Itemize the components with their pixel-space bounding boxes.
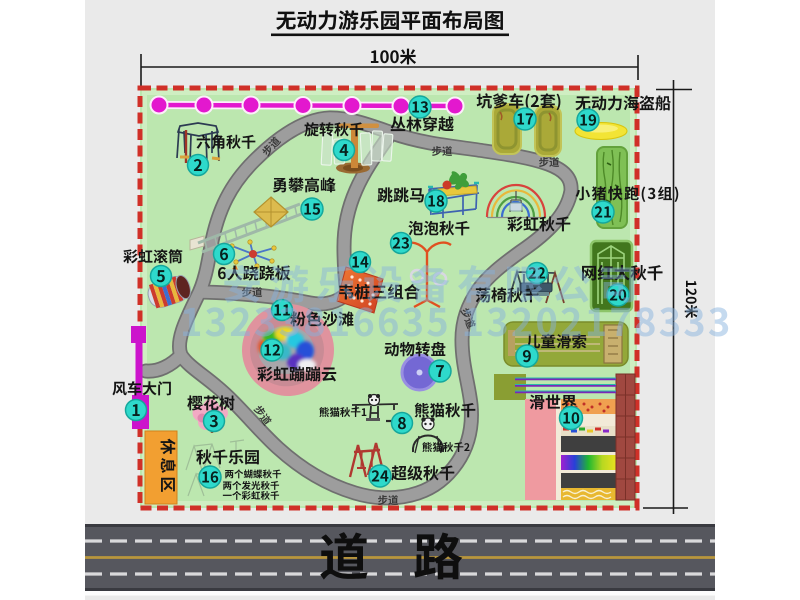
svg-text:5: 5 [156,263,165,287]
svg-text:跳跳马: 跳跳马 [377,182,425,206]
svg-text:100米: 100米 [369,43,416,68]
svg-text:4: 4 [339,137,348,161]
svg-text:熊猫秋千2: 熊猫秋千2 [422,440,470,455]
svg-text:勇攀高峰: 勇攀高峰 [272,172,336,196]
svg-text:19: 19 [579,110,597,131]
svg-text:15: 15 [303,199,321,220]
svg-text:17: 17 [516,109,534,130]
svg-text:六角秋千: 六角秋千 [196,132,256,153]
svg-text:3: 3 [209,408,218,432]
svg-text:熊猫秋千1: 熊猫秋千1 [319,405,367,420]
svg-text:7: 7 [435,358,444,382]
svg-text:10: 10 [562,408,580,429]
svg-text:一个彩虹秋千: 一个彩虹秋千 [222,488,280,502]
svg-text:13: 13 [411,97,429,118]
svg-text:21: 21 [594,202,612,223]
svg-text:2: 2 [193,152,202,176]
svg-text:彩虹蹦蹦云: 彩虹蹦蹦云 [257,361,337,385]
svg-text:彩虹秋千: 彩虹秋千 [507,211,571,235]
svg-text:彩虹滚筒: 彩虹滚筒 [123,246,183,267]
svg-text:风车大门: 风车大门 [112,378,172,399]
svg-text:16: 16 [201,467,219,488]
svg-text:休息区: 休息区 [157,438,181,495]
svg-text:秋千乐园: 秋千乐园 [196,444,260,468]
svg-text:无动力游乐园平面布局图: 无动力游乐园平面布局图 [276,4,505,34]
svg-text:23: 23 [392,233,410,254]
svg-text:8: 8 [397,410,406,434]
svg-text:道: 道 [319,518,369,590]
svg-text:超级秋千: 超级秋千 [391,460,455,484]
svg-text:泡泡秋千: 泡泡秋千 [408,217,470,239]
svg-text:旋转秋千: 旋转秋千 [304,119,364,140]
svg-text:小猪快跑(3组): 小猪快跑(3组) [575,183,681,204]
svg-text:24: 24 [371,466,389,487]
svg-text:步道: 步道 [378,493,399,508]
svg-text:步道: 步道 [539,155,560,170]
svg-text:步道: 步道 [432,144,453,159]
svg-text:13233816635 13202178333: 13233816635 13202178333 [180,292,732,347]
svg-text:18: 18 [427,191,445,212]
svg-text:路: 路 [413,518,463,590]
svg-text:1: 1 [131,397,140,421]
